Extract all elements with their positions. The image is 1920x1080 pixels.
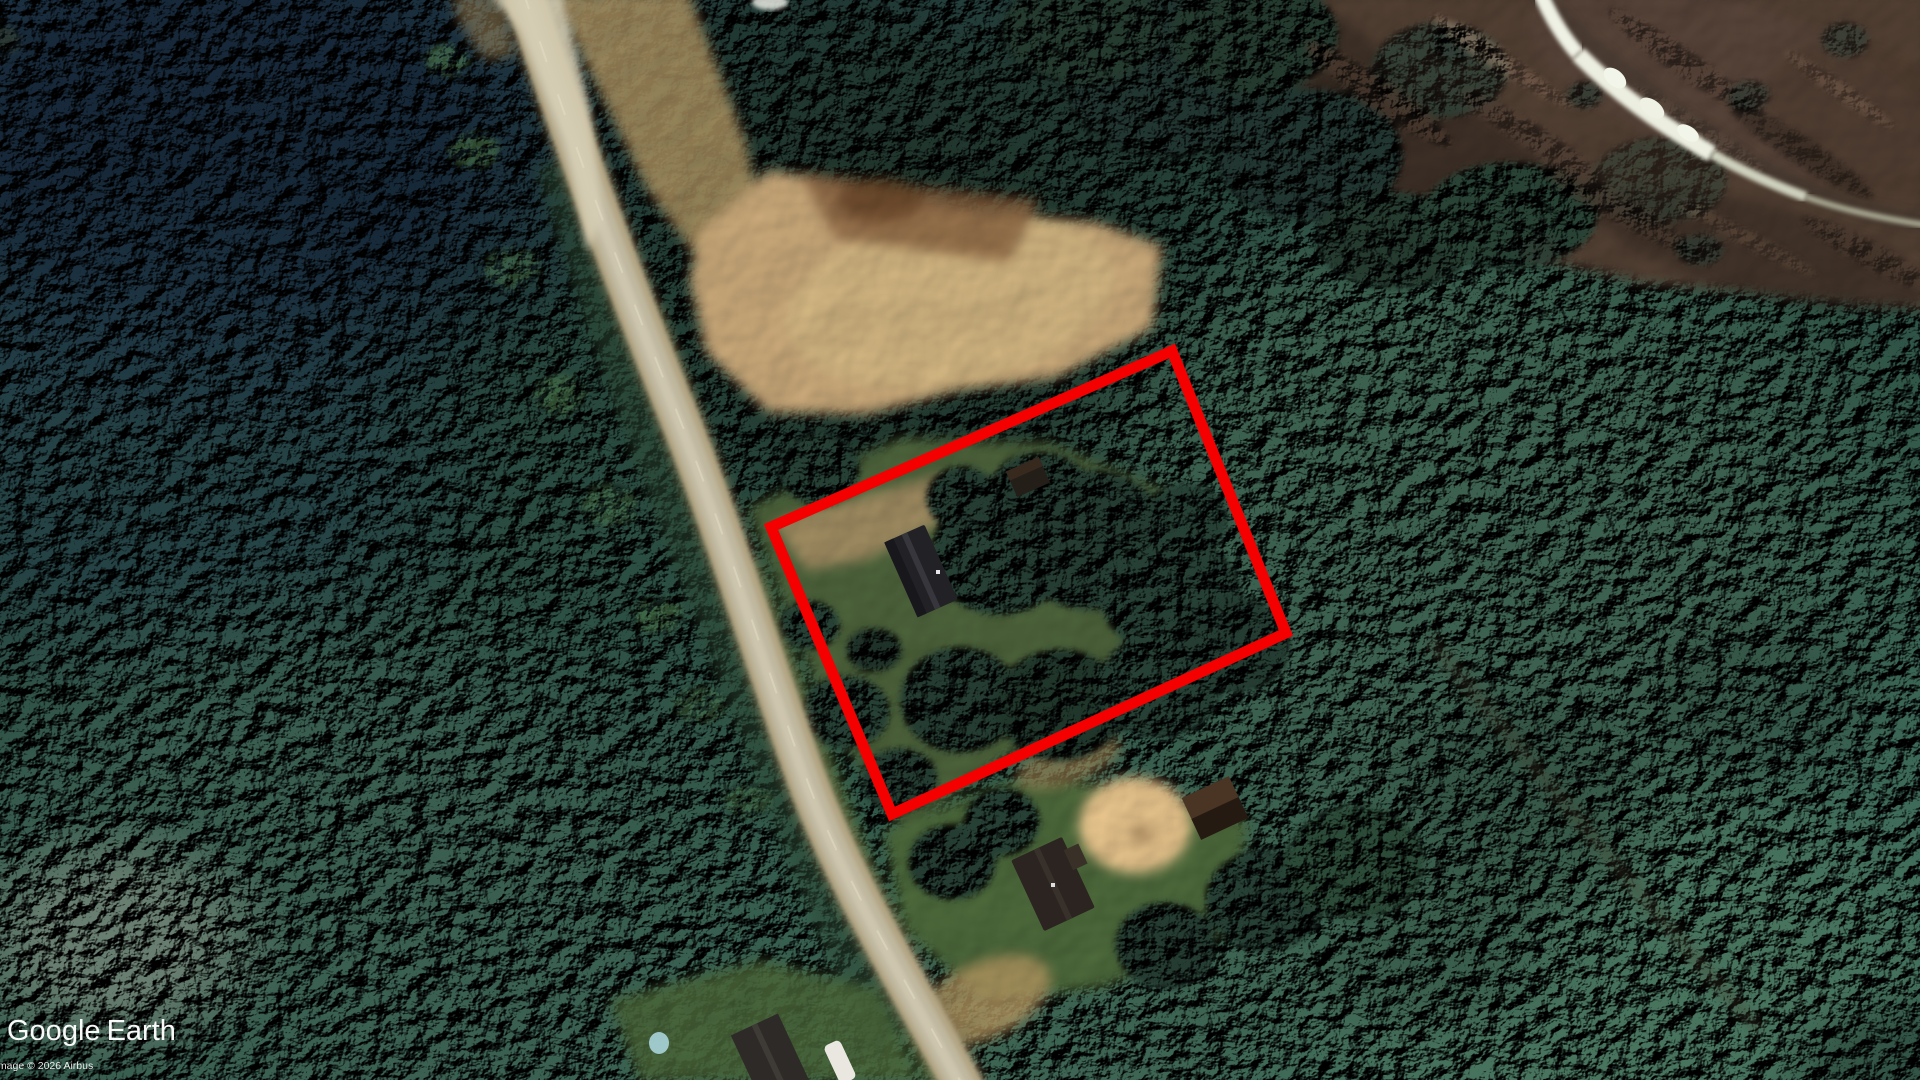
svg-text:Google Earth: Google Earth: [7, 1015, 176, 1047]
svg-text:Image © 2026 Airbus: Image © 2026 Airbus: [0, 1060, 93, 1072]
